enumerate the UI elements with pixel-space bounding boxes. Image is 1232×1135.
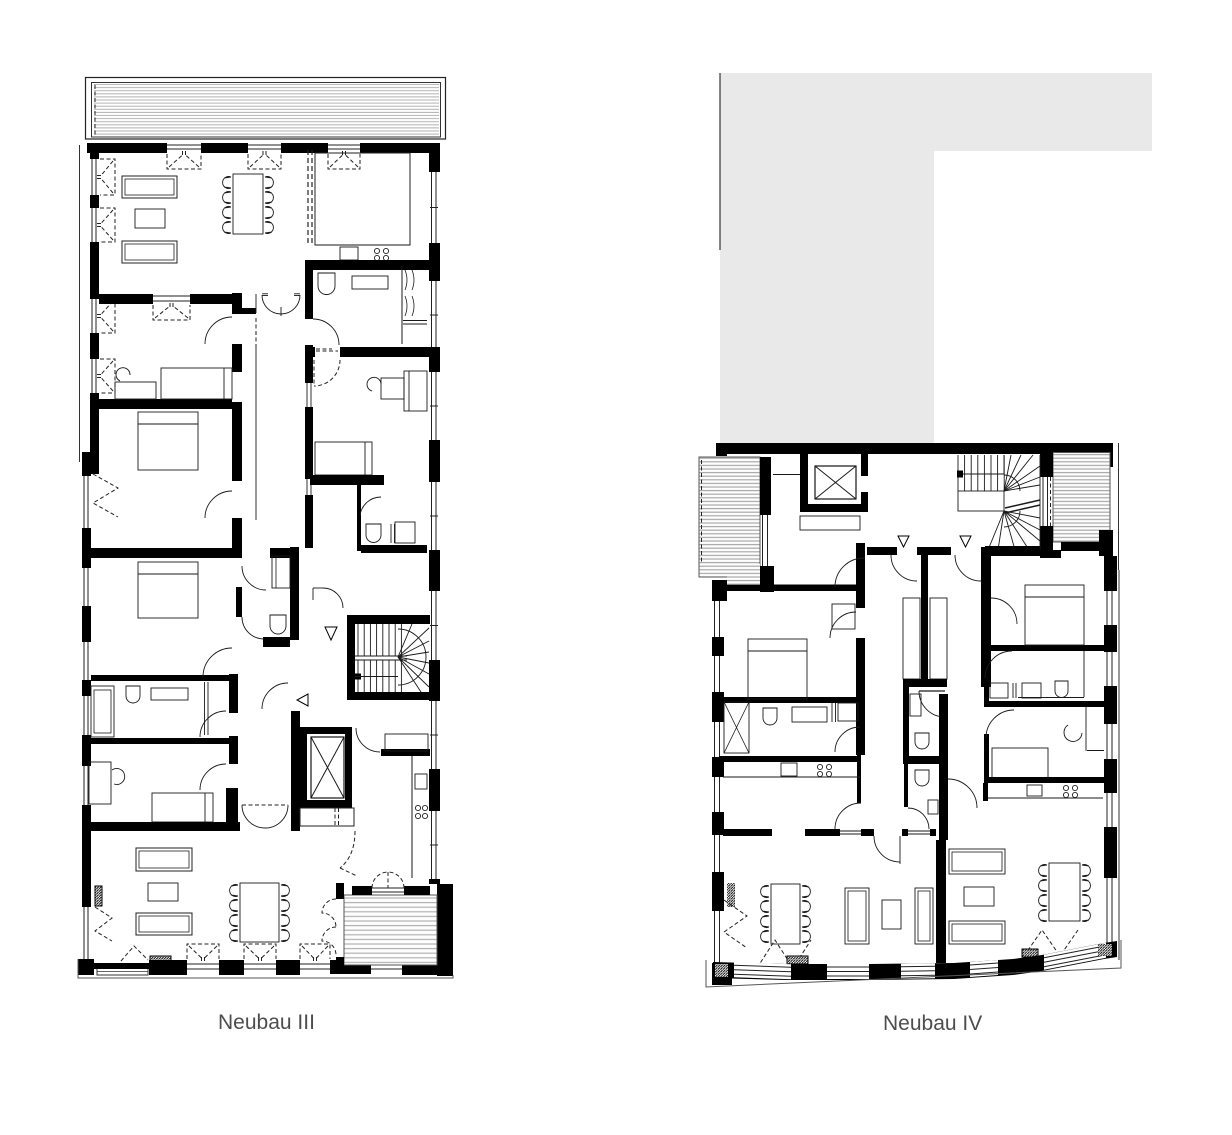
- svg-text:Neubau III: Neubau III: [218, 1011, 315, 1034]
- svg-text:Neubau IV: Neubau IV: [883, 1012, 982, 1035]
